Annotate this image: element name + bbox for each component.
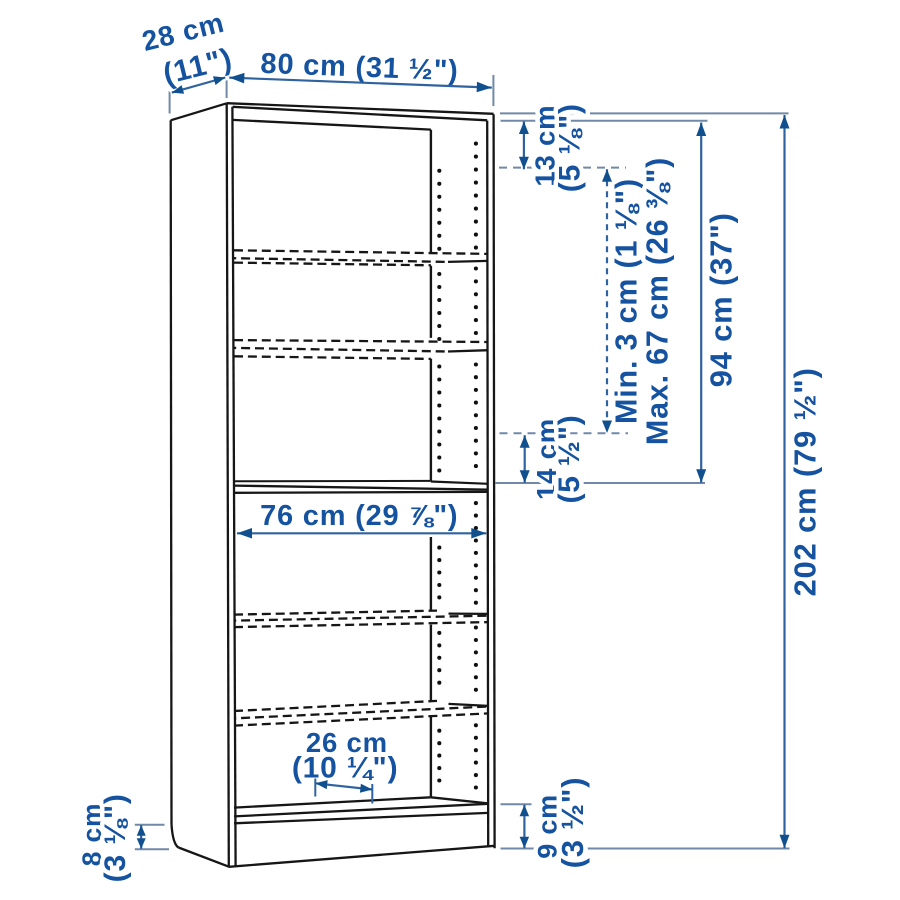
- svg-text:(3 ⅛"): (3 ⅛"): [99, 793, 132, 882]
- svg-text:(10 ¼"): (10 ¼"): [292, 752, 399, 785]
- svg-text:Min. 3 cm (1 ⅛"): Min. 3 cm (1 ⅛"): [610, 178, 644, 424]
- svg-text:(5 ½"): (5 ½"): [553, 414, 586, 503]
- svg-text:76 cm (29 ⅞"): 76 cm (29 ⅞"): [260, 500, 458, 532]
- svg-text:(5 ⅛"): (5 ⅛"): [554, 103, 587, 192]
- svg-text:94 cm (37"): 94 cm (37"): [704, 212, 739, 387]
- svg-text:202 cm (79 ½"): 202 cm (79 ½"): [788, 367, 823, 596]
- svg-text:Max. 67 cm (26 ⅜"): Max. 67 cm (26 ⅜"): [641, 157, 675, 445]
- svg-text:(3 ½"): (3 ½"): [555, 777, 590, 869]
